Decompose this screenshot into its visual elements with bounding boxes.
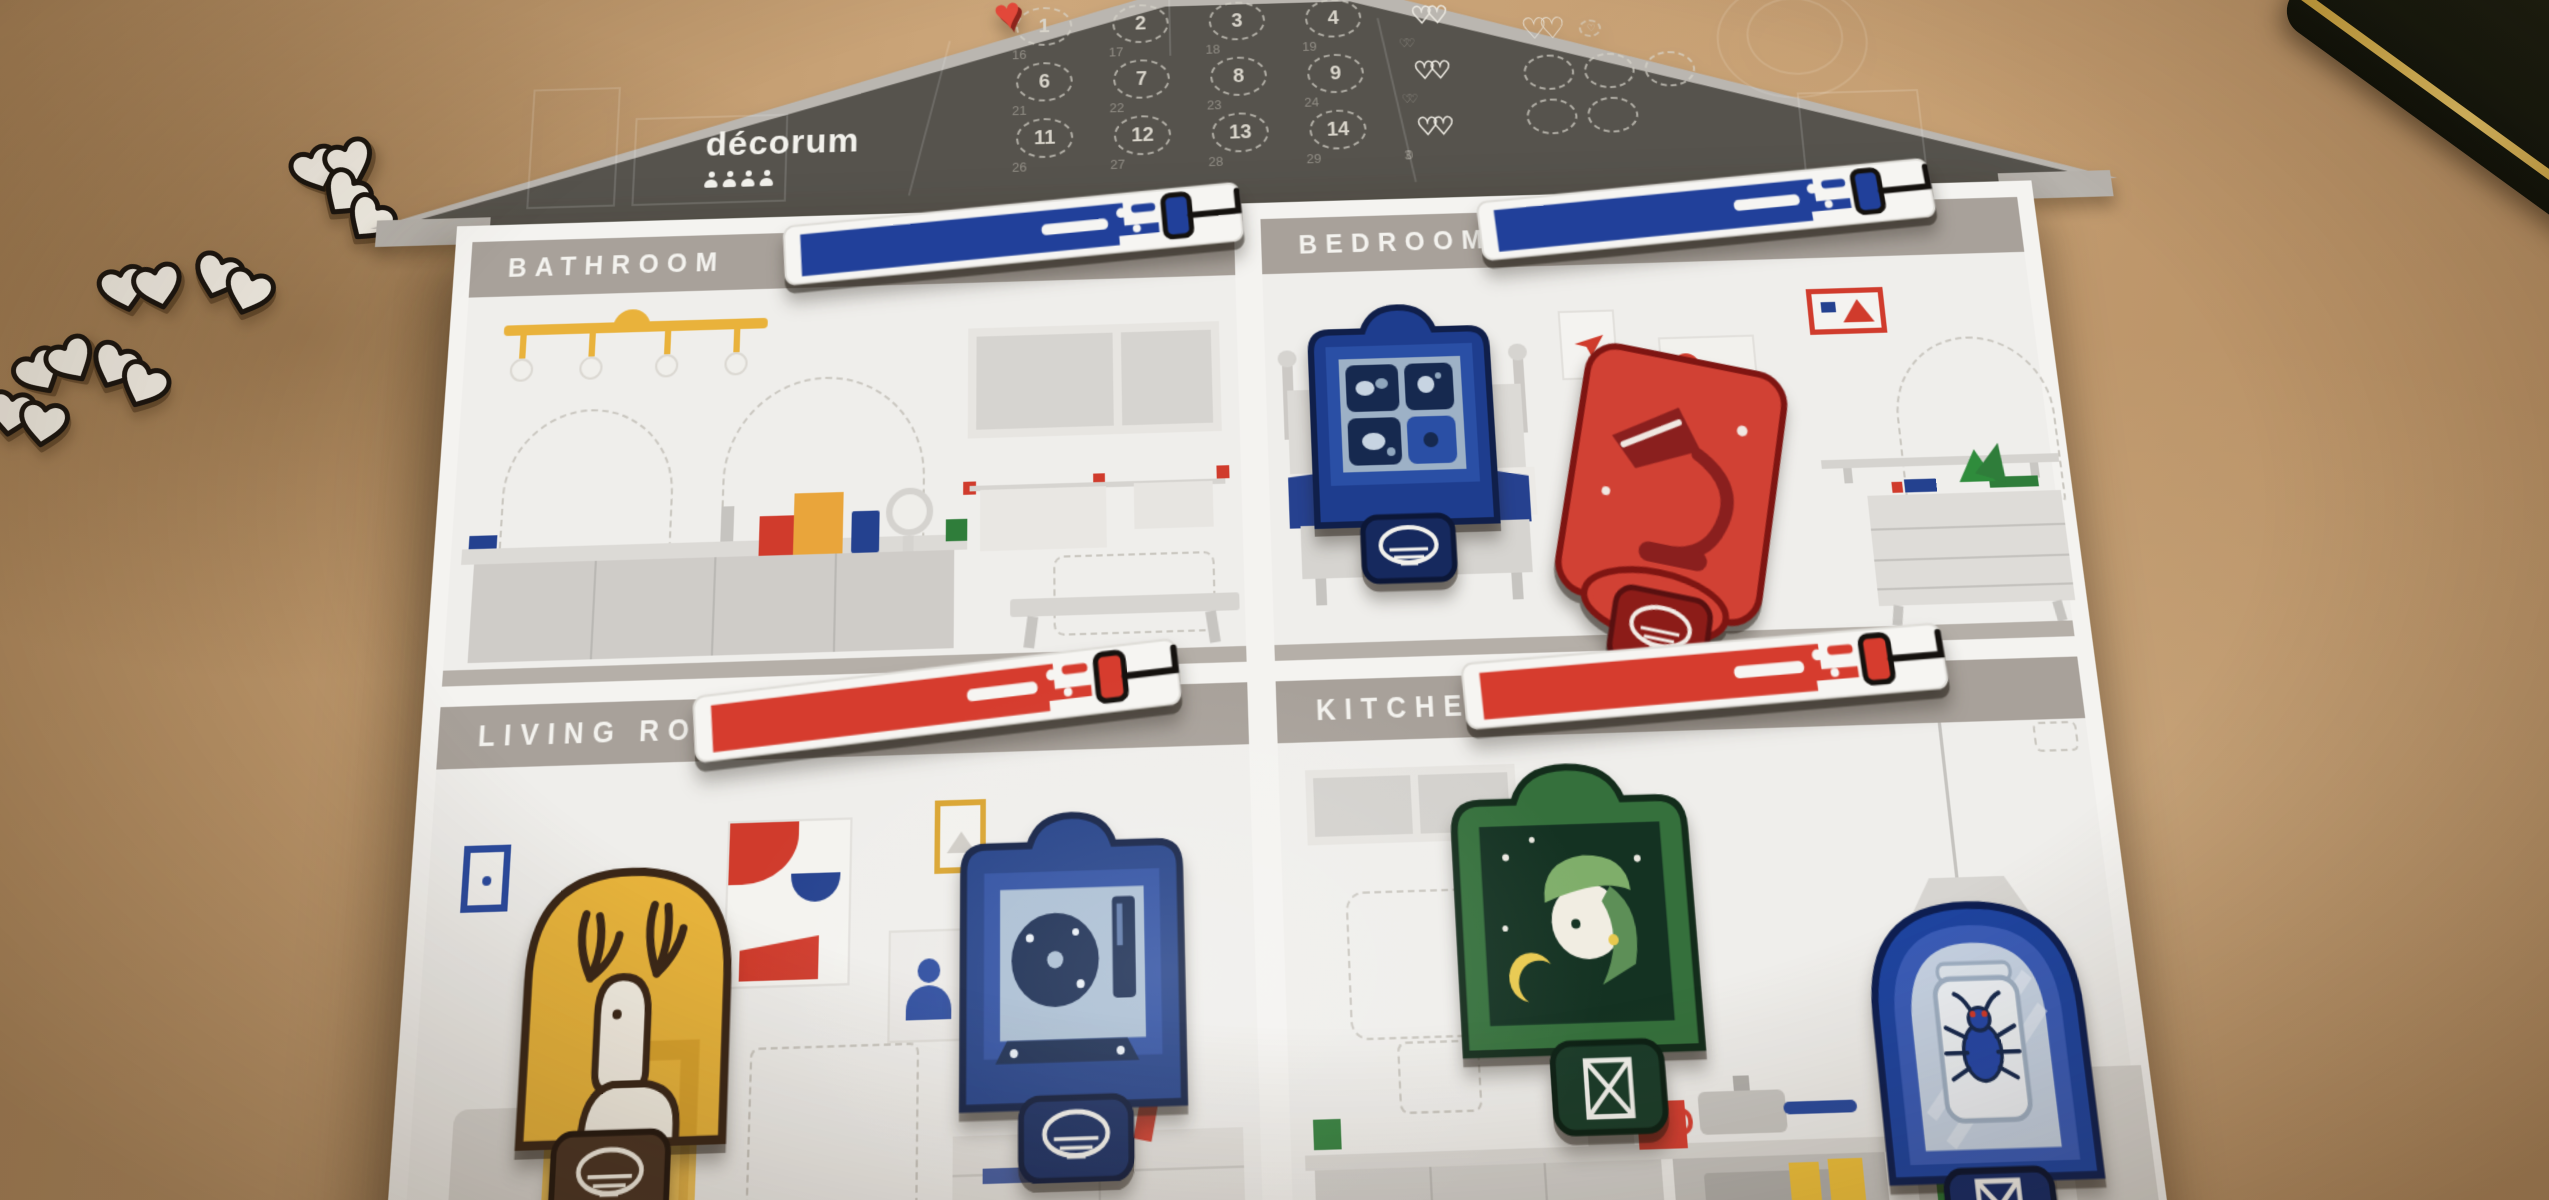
cabinet-line (711, 557, 717, 655)
person-icon (741, 170, 755, 186)
game-box-corner: ⁂⁂⁂ (2277, 0, 2549, 269)
logo-title: décorum (705, 122, 860, 165)
round-number: 6 (1016, 61, 1073, 102)
cabinet-line (1543, 1163, 1551, 1200)
room-living-room: LIVING ROOM (399, 682, 1264, 1200)
kitchen-body (1278, 718, 2152, 1200)
cabinet-line (832, 554, 836, 652)
score-legend: ♡♡ ♡ (1520, 8, 1701, 135)
living-room-body (401, 744, 1264, 1200)
person-icon (723, 171, 737, 187)
photo-mountain (1841, 299, 1875, 323)
orange-box (793, 492, 844, 555)
blue-curio-moth-art-token[interactable] (1292, 292, 1518, 588)
oven-window (1704, 1169, 1847, 1200)
round-number: 14 (1309, 109, 1368, 150)
light-bulb (579, 356, 603, 380)
round-number: ♡♡ (1403, 50, 1462, 91)
round-number: 12 (1114, 115, 1172, 156)
heart-pair-token[interactable] (89, 243, 198, 330)
dresser (1867, 490, 2075, 606)
blue-box-item (1904, 478, 1937, 492)
round-space: 11 26 (996, 117, 1094, 177)
blue-tile-item (469, 535, 498, 549)
pan-handle (1783, 1100, 1857, 1115)
round-track: 1 16 2 17 3 18 4 19 ♡♡ ♡♡ (996, 0, 1487, 176)
round-number: 13 (1211, 112, 1269, 153)
table-scene: ⁂⁂⁂ (0, 0, 2549, 1200)
round-space: 12 27 (1093, 114, 1192, 174)
blue-bug-jar-curio-token[interactable] (1840, 857, 2131, 1200)
round-space: 13 28 (1191, 111, 1291, 170)
round-space: ♡♡ ♡♡ (1380, 0, 1479, 53)
round-space: 4 19 (1284, 0, 1383, 55)
score-legend-row-1 (1522, 50, 1696, 90)
counter-cabinets (468, 550, 955, 663)
round-number: 1 (1016, 6, 1072, 46)
bathroom-label: BATHROOM (470, 247, 726, 284)
window (968, 321, 1222, 438)
score-value (1525, 98, 1578, 135)
heart-pair-token[interactable] (0, 380, 82, 459)
round-space: 2 17 (1092, 3, 1189, 61)
round-sub-number: 29 (1290, 149, 1389, 168)
room-kitchen: KITCHEN (1276, 656, 2155, 1200)
red-desk-lamp-token[interactable] (1523, 322, 1817, 654)
round-space: ♡♡ ♡♡ (1383, 50, 1483, 109)
blue-record-player-token[interactable] (939, 792, 1210, 1185)
score-value (1522, 54, 1575, 91)
heart-pair-token[interactable] (180, 239, 292, 331)
yellow-deer-art-token[interactable] (493, 828, 752, 1200)
box-gold-stripe (2293, 0, 2549, 247)
towel (1134, 481, 1214, 529)
pendant-cord (1938, 723, 1959, 878)
light-stem (588, 333, 596, 356)
round-number: 8 (1210, 56, 1268, 97)
light-stem (519, 335, 527, 358)
towel (980, 486, 1107, 551)
round-number: 9 (1307, 53, 1365, 94)
round-number: 7 (1113, 59, 1170, 100)
round-space: ♡♡ 30 (1386, 106, 1487, 165)
decorum-logo: décorum (704, 122, 860, 188)
person-icon (704, 171, 718, 187)
light-stem (664, 331, 671, 354)
round-sub-number: 30 (1388, 146, 1487, 165)
bedroom-label: BEDROOM (1261, 225, 1492, 261)
bathroom-body (443, 275, 1246, 671)
red-item (1891, 482, 1903, 493)
round-number: 3 (1208, 1, 1265, 41)
shelf-support (1843, 468, 1853, 483)
bedroom-body (1262, 252, 2072, 645)
green-portrait-painting-token[interactable] (1430, 742, 1731, 1146)
roof-lineart-chimney (526, 87, 621, 209)
window-divider (1410, 775, 1421, 834)
house-walls: BATHROOM (378, 180, 2177, 1200)
light-bulb (509, 358, 534, 382)
round-space: 3 18 (1188, 0, 1286, 58)
person-icon (760, 170, 774, 186)
round-number: 4 (1304, 0, 1362, 38)
light-bulb (724, 352, 748, 376)
round-number: ♡♡ (1400, 0, 1458, 36)
photo-detail (1820, 302, 1836, 313)
round-number: ♡♡ (1406, 106, 1465, 147)
green-soap (946, 519, 968, 542)
round-space: 7 22 (1093, 58, 1191, 117)
round-space: 8 23 (1190, 55, 1289, 114)
room-bedroom: BEDROOM (1260, 197, 2074, 661)
bed-knob (1507, 343, 1527, 360)
hearts-icon: ♡♡ (1520, 13, 1558, 46)
bench-leg (1023, 616, 1038, 649)
score-legend-row-2 (1525, 94, 1700, 135)
placement-outline-small (2032, 721, 2080, 752)
pan-knob (1733, 1075, 1750, 1091)
blue-cup (851, 510, 880, 553)
bottle (720, 506, 734, 541)
round-space: 6 21 (996, 61, 1094, 120)
red-frame-photo (1806, 287, 1888, 335)
cabinet-line (1429, 1167, 1435, 1200)
round-mirror (886, 487, 934, 536)
light-stem (733, 329, 740, 352)
blue-frame-print (460, 845, 511, 913)
blue-half-disc (790, 872, 840, 902)
round-number: 2 (1112, 4, 1169, 44)
decorum-house-board: décorum 1 16 2 17 3 (279, 0, 2275, 1200)
score-value (1586, 96, 1640, 133)
drawer-line (1877, 582, 2073, 590)
window-divider (1112, 332, 1122, 425)
green-box (1313, 1119, 1342, 1150)
score-value (1583, 52, 1636, 89)
silhouette-head (917, 958, 940, 983)
round-number: 11 (1016, 117, 1073, 158)
round-space: 9 24 (1286, 53, 1385, 112)
cabinet-line (589, 561, 596, 660)
light-bulb (655, 354, 679, 378)
round-space: 14 29 (1288, 108, 1388, 167)
drawer-line (1874, 553, 2069, 561)
round-sub-number: 28 (1192, 152, 1291, 171)
round-sub-number: 27 (1094, 155, 1192, 174)
mirror-stand (903, 536, 914, 552)
round-sub-number: 26 (996, 157, 1094, 176)
yellow-towel (1789, 1162, 1825, 1200)
dresser-leg (2052, 600, 2067, 622)
drawer-line (1871, 523, 2066, 531)
red-wedge (739, 935, 819, 981)
score-value (1643, 50, 1696, 87)
room-bathroom: BATHROOM (442, 220, 1247, 687)
mini-heart-badge-icon: ♡ (1579, 19, 1602, 37)
bench-leg (1205, 610, 1221, 643)
print-dot (482, 876, 492, 886)
placement-outline-rect (744, 1042, 919, 1200)
towel-hook (1216, 465, 1229, 478)
